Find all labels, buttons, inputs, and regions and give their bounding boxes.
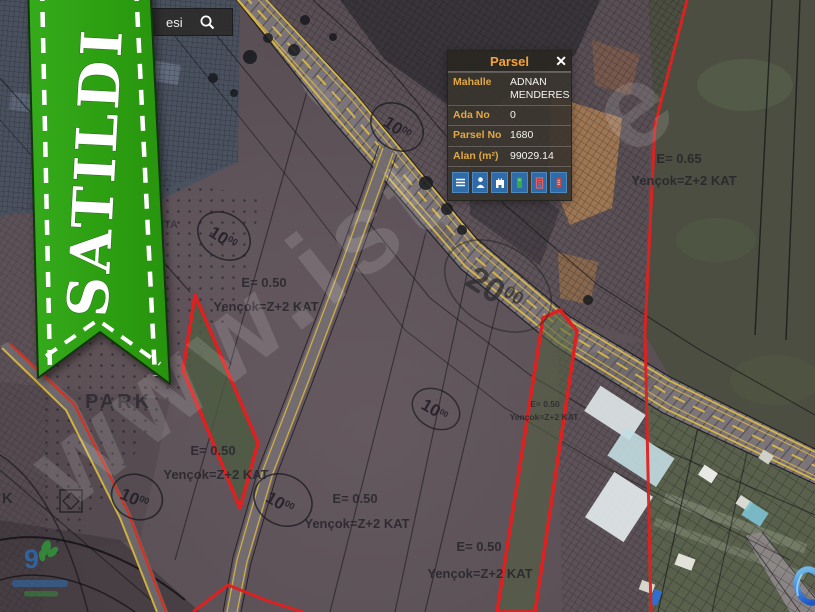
popup-header: Parsel ✕ xyxy=(448,51,571,72)
person-button[interactable] xyxy=(472,172,489,193)
logo-tagline xyxy=(24,591,58,597)
field-row-mahalle: Mahalle ADNAN MENDERES xyxy=(448,72,571,105)
field-label: Parsel No xyxy=(453,129,508,142)
zone-label: Yençok=Z+2 KAT xyxy=(631,173,736,188)
zone-label: Yençok=Z+2 KAT xyxy=(163,467,268,482)
close-icon[interactable]: ✕ xyxy=(555,51,567,72)
k-label: K xyxy=(2,490,13,507)
zone-label: Yençok=Z+2 KAT xyxy=(510,412,580,422)
archive-button[interactable] xyxy=(550,172,567,193)
field-value: 1680 xyxy=(510,129,566,142)
zone-label: E= 0.50 xyxy=(190,443,235,458)
municipality-button[interactable] xyxy=(491,172,508,193)
zone-label: E= 0.50 xyxy=(332,491,377,506)
sold-ribbon: SATILDI xyxy=(2,0,202,420)
zone-label: Yençok=Z+2 KAT xyxy=(213,299,318,314)
popup-toolbar xyxy=(448,166,571,200)
field-row-alan: Alan (m²) 99029.14 xyxy=(448,146,571,166)
field-value: 99029.14 xyxy=(510,150,566,163)
zone-label: Yençok=Z+2 KAT xyxy=(427,566,532,581)
building-icon xyxy=(534,176,545,189)
field-label: Alan (m²) xyxy=(453,150,508,163)
logo-glyph: 9 xyxy=(24,544,39,574)
popup-title: Parsel xyxy=(490,54,529,69)
zone-label: E= 0.50 xyxy=(456,539,501,554)
zone-label: E= 0.50 xyxy=(241,275,286,290)
svg-text:1000: 1000 xyxy=(418,395,452,426)
field-value: 0 xyxy=(510,109,566,122)
field-label: Ada No xyxy=(453,109,508,122)
swoosh-logo xyxy=(786,558,815,612)
document-icon xyxy=(514,176,525,189)
field-label: Mahalle xyxy=(453,76,508,102)
person-icon xyxy=(475,176,486,189)
archive-icon xyxy=(553,176,564,189)
zone-label: E= 0.50 xyxy=(530,399,560,409)
field-row-parsel-no: Parsel No 1680 xyxy=(448,125,571,145)
parcel-info-popup: Parsel ✕ Mahalle ADNAN MENDERES Ada No 0… xyxy=(447,50,572,201)
building-button[interactable] xyxy=(531,172,548,193)
agency-logo: 9 xyxy=(6,536,76,606)
field-value: ADNAN MENDERES xyxy=(510,76,570,102)
zone-label: E= 0.65 xyxy=(656,151,701,166)
zone-label: Yençok=Z+2 KAT xyxy=(304,516,409,531)
menu-button[interactable] xyxy=(452,172,469,193)
screenshot-stage: 1000 1000 1000 1000 1000 2000 E= 0.50 Ye… xyxy=(0,0,815,612)
menu-icon xyxy=(455,176,466,189)
red-segment-bottom xyxy=(193,585,303,612)
municipality-icon xyxy=(494,176,505,189)
logo-wordmark xyxy=(12,580,68,587)
field-row-ada-no: Ada No 0 xyxy=(448,105,571,125)
document-button[interactable] xyxy=(511,172,528,193)
logo-leaf xyxy=(38,539,60,562)
